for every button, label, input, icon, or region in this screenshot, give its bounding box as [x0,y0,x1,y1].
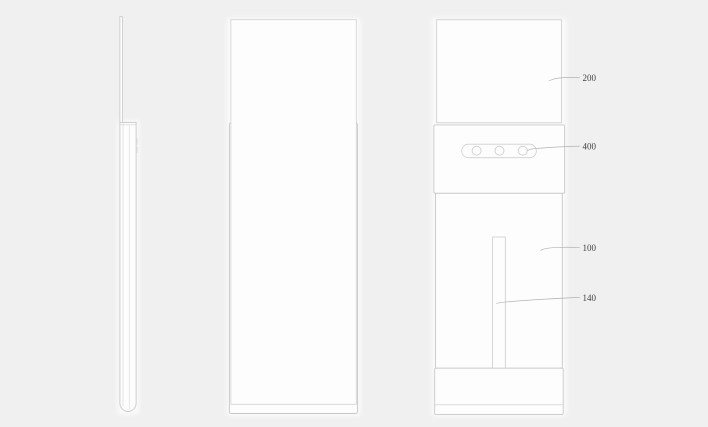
svg-text:400: 400 [583,141,597,151]
svg-text:100: 100 [583,243,597,253]
svg-text:140: 140 [583,293,597,303]
svg-text:200: 200 [583,73,597,83]
